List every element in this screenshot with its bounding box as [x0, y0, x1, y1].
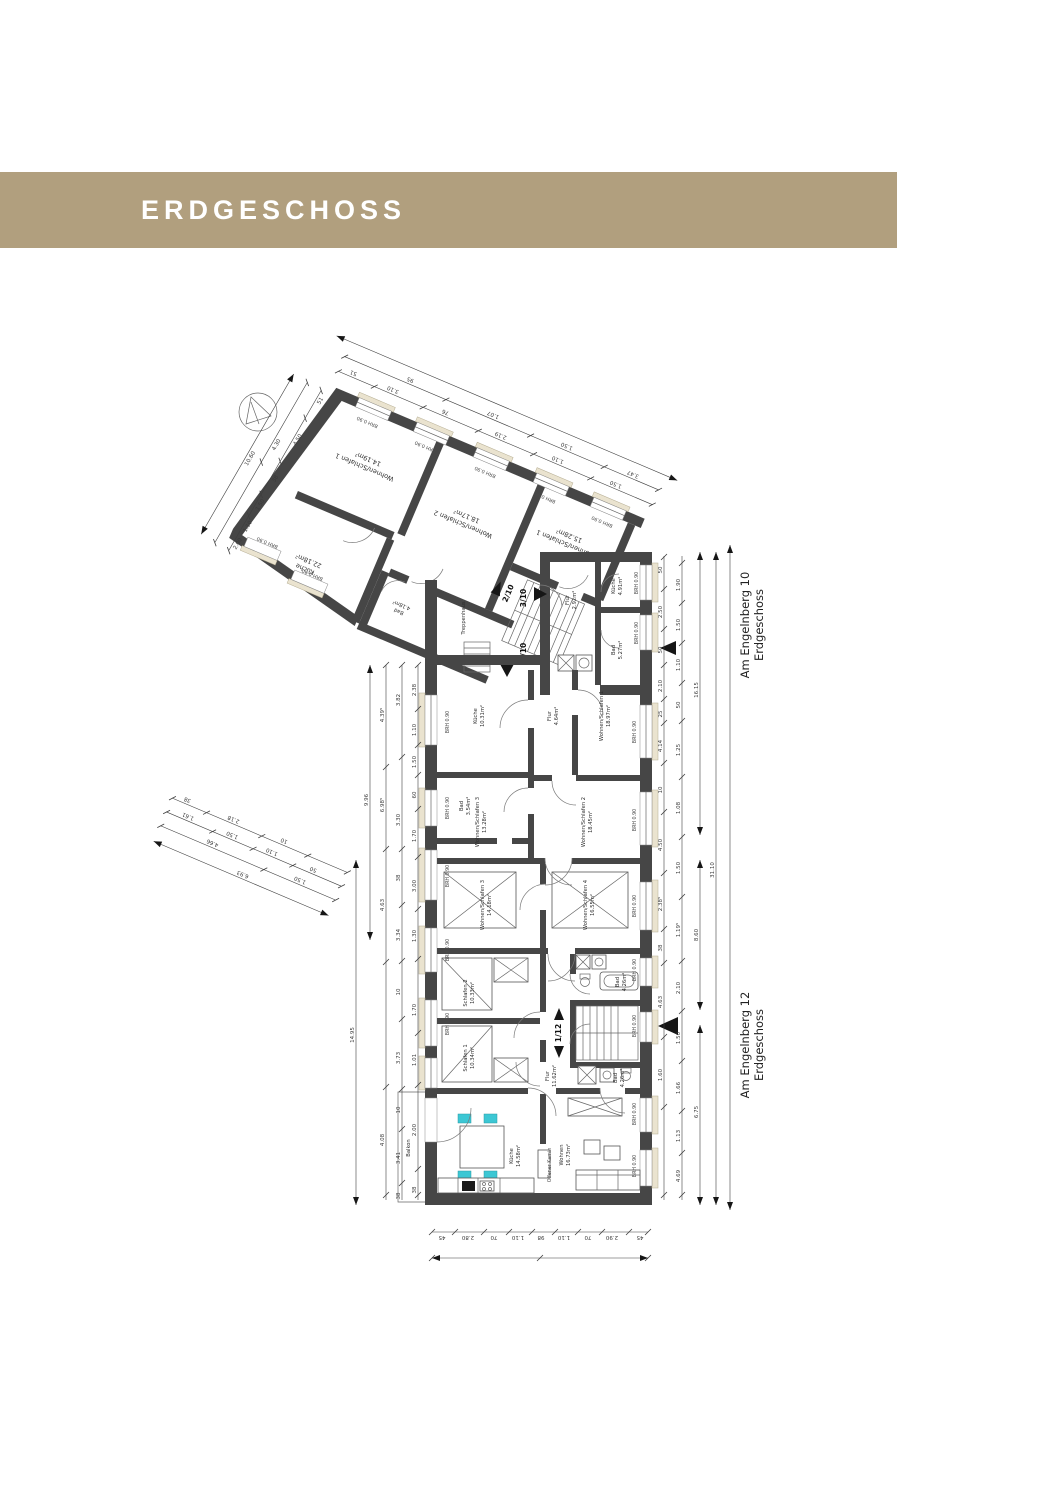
room-name: Flur [565, 594, 571, 605]
svg-text:31.10: 31.10 [710, 862, 716, 878]
svg-text:38: 38 [183, 795, 192, 803]
svg-text:45: 45 [636, 1234, 643, 1240]
brh-label: BRH 0.90 [634, 622, 640, 644]
room-name: Bad [611, 645, 617, 655]
svg-text:10: 10 [280, 836, 289, 844]
room-area: 11.62m² [552, 1065, 558, 1087]
brh-label: BRH 0.90 [445, 797, 451, 819]
room-name: Wohnen/Schlafen 4 [583, 879, 589, 930]
brh-label: BRH 0.90 [632, 809, 638, 831]
svg-text:1.60: 1.60 [658, 1068, 664, 1081]
room-name: Bad [615, 977, 621, 987]
room-area: 10.34m² [470, 1047, 476, 1069]
unit-marker-1-12: 1/12 [554, 1024, 563, 1042]
svg-text:70: 70 [490, 1234, 497, 1240]
bottom-dim-chains: 45 2.80 70 1.10 98 1.10 70 2.90 45 [429, 1229, 651, 1261]
balcony-label: Balkon [406, 1139, 412, 1156]
svg-text:3.73: 3.73 [396, 1051, 402, 1064]
svg-text:98: 98 [537, 1234, 544, 1240]
svg-text:1.70: 1.70 [412, 1003, 418, 1016]
room-name: Wohnen/Schlafen 1 [599, 691, 605, 741]
north-arrow-icon [239, 393, 277, 431]
brh-label: BRH 0.90 [632, 959, 638, 981]
room-name: Küche [473, 708, 479, 724]
left-upper-dim-chains: 51 4.50 38 1.50 1.10 2.00 4.30 10.60 [197, 371, 329, 557]
room-name: Wohnen/Schlafen 2 [581, 797, 587, 847]
svg-text:2.90: 2.90 [605, 1234, 618, 1240]
svg-text:4.66: 4.66 [206, 837, 220, 848]
room-area: 18.97m² [606, 705, 612, 727]
room-area: 14.18m² [487, 894, 493, 916]
svg-text:1.13: 1.13 [676, 1129, 682, 1142]
svg-text:3.41: 3.41 [396, 1152, 402, 1164]
entrance-arrows [658, 641, 678, 1035]
svg-text:14.95: 14.95 [350, 1027, 356, 1043]
svg-text:2.38: 2.38 [412, 683, 418, 696]
svg-text:1.50: 1.50 [676, 618, 682, 631]
room-area: 3.54m² [466, 797, 472, 816]
svg-text:45: 45 [438, 1234, 445, 1240]
brochure-page: ERDGESCHOSS [0, 0, 1060, 1500]
svg-text:4.63: 4.63 [380, 898, 386, 911]
svg-text:10: 10 [396, 988, 402, 995]
brh-label: BRH 0.90 [445, 711, 451, 733]
svg-text:1.50: 1.50 [412, 755, 418, 768]
lower-wing: 1/12 [398, 641, 678, 1205]
svg-text:38: 38 [396, 1192, 402, 1199]
svg-text:2.80: 2.80 [461, 1234, 474, 1240]
building-12-street: Am Engelnberg 12 [738, 992, 752, 1099]
svg-text:1.50: 1.50 [676, 861, 682, 874]
room-area: 4.26m² [622, 973, 628, 992]
svg-text:1.90: 1.90 [676, 578, 682, 591]
svg-text:1.19⁵: 1.19⁵ [675, 923, 682, 937]
svg-text:6.98⁵: 6.98⁵ [379, 798, 386, 812]
brh-label: BRH 0.90 [445, 1013, 451, 1035]
svg-text:3.10: 3.10 [386, 384, 400, 395]
room-name: Bad [613, 1073, 619, 1083]
building-labels: Am Engelnberg 10 Erdgeschoss Am Engelnbe… [738, 572, 766, 1099]
room-area: 4.91m² [618, 577, 624, 596]
svg-text:10: 10 [658, 786, 664, 793]
svg-text:50: 50 [658, 646, 664, 653]
room-area: 13.28m² [482, 811, 488, 833]
svg-text:2.00: 2.00 [412, 1123, 418, 1136]
room-name: Schlafen 1 [463, 1044, 469, 1071]
svg-text:1.10: 1.10 [412, 723, 418, 736]
svg-text:2.10: 2.10 [676, 981, 682, 994]
building-12-floor: Erdgeschoss [752, 1009, 766, 1081]
svg-text:4.69: 4.69 [676, 1169, 682, 1182]
svg-text:1.08: 1.08 [676, 801, 682, 814]
room-name: Schlafen 2 [463, 979, 469, 1006]
room-name: Flur [547, 710, 553, 721]
brh-label: BRH 0.90 [356, 415, 379, 429]
svg-text:2.10: 2.10 [658, 679, 664, 692]
svg-text:3.82: 3.82 [396, 694, 402, 706]
lower-stair: 1/12 [554, 1006, 638, 1060]
svg-text:1.10: 1.10 [551, 454, 565, 465]
brh-label: BRH 0.90 [632, 721, 638, 743]
room-area: 4.26m² [620, 1069, 626, 1088]
svg-text:25: 25 [658, 710, 664, 717]
svg-text:1.10: 1.10 [557, 1234, 570, 1240]
svg-text:1.01: 1.01 [412, 1054, 418, 1066]
svg-text:1.10: 1.10 [676, 658, 682, 671]
building-10-street: Am Engelnberg 10 [738, 572, 752, 679]
svg-text:38: 38 [396, 874, 402, 881]
svg-text:10.60: 10.60 [244, 450, 257, 467]
svg-text:1.07: 1.07 [486, 409, 500, 420]
svg-text:4.63: 4.63 [658, 995, 664, 1008]
room-area: 10.33m² [470, 982, 476, 1004]
brh-label: BRH 0.90 [445, 865, 451, 887]
left-dim-chains: 2.38 1.10 1.50 60 1.70 3.00 1.30 1.70 1.… [350, 662, 421, 1205]
svg-text:1.10: 1.10 [511, 1234, 524, 1240]
svg-text:2.19: 2.19 [494, 430, 508, 441]
room-name: Flur [545, 1070, 551, 1081]
svg-text:76: 76 [441, 407, 450, 415]
stairwell-label: Treppenhaus [461, 601, 467, 635]
room-name: Wohnen [559, 1144, 565, 1165]
svg-text:50: 50 [658, 566, 664, 573]
room-area: 4.64m² [554, 707, 560, 726]
room-area: 16.73m² [566, 1144, 572, 1166]
svg-text:4.14: 4.14 [658, 739, 664, 752]
svg-text:95: 95 [406, 375, 415, 383]
brh-label: BRH 0.90 [632, 895, 638, 917]
svg-text:6.93: 6.93 [236, 868, 250, 879]
svg-text:16.15: 16.15 [694, 682, 700, 698]
brh-label: BRH 0.90 [632, 1155, 638, 1177]
svg-text:8.60: 8.60 [694, 928, 700, 941]
room-name: Bad [459, 801, 465, 811]
svg-text:4.30: 4.30 [271, 438, 283, 452]
brh-label: BRH 0.90 [591, 514, 614, 528]
brh-label: BRH 0.90 [414, 439, 437, 453]
svg-text:50: 50 [676, 701, 682, 708]
room-name: Küche [509, 1148, 515, 1164]
connector-block: Flur 2.92m² Küche 4.91m² Bad 5.27m² BRH … [519, 552, 658, 695]
svg-text:1.30: 1.30 [412, 929, 418, 942]
svg-text:4.08: 4.08 [380, 1133, 386, 1146]
bath-upper-fixtures [576, 955, 638, 990]
svg-text:1.70: 1.70 [412, 829, 418, 842]
svg-text:9.96: 9.96 [364, 793, 370, 806]
svg-text:1.25: 1.25 [676, 743, 682, 756]
room-area: 2.92m² [572, 591, 578, 610]
room-name: Wohnen/Schlafen 3 [475, 797, 481, 847]
svg-text:50: 50 [309, 865, 318, 873]
svg-text:51: 51 [316, 397, 325, 406]
svg-text:60: 60 [412, 791, 418, 798]
svg-text:1.50: 1.50 [225, 829, 239, 840]
svg-text:3.00: 3.00 [412, 879, 418, 892]
svg-text:1.50: 1.50 [676, 1031, 682, 1044]
svg-text:1.10: 1.10 [265, 846, 279, 857]
svg-text:70: 70 [584, 1234, 591, 1240]
svg-text:38: 38 [412, 1186, 418, 1193]
building-10-floor: Erdgeschoss [752, 589, 766, 661]
svg-text:3.30: 3.30 [396, 813, 402, 826]
svg-text:3.47: 3.47 [626, 468, 640, 479]
brh-label: BRH 0.90 [634, 572, 640, 594]
svg-text:38: 38 [658, 944, 664, 951]
svg-text:2.50: 2.50 [658, 605, 664, 618]
fireplace-label: Offener Kamin [547, 1148, 553, 1183]
room-area: 14.58m² [516, 1145, 522, 1167]
svg-text:51: 51 [349, 368, 358, 376]
room-area: 18.45m² [588, 811, 594, 833]
room-area: 10.31m² [480, 705, 486, 727]
room-name: Wohnen/Schlafen 3 [480, 880, 486, 930]
room-name: Küche [611, 578, 617, 594]
room-area: 5.27m² [618, 641, 624, 660]
svg-text:3/10: 3/10 [519, 589, 528, 607]
svg-text:4.39⁵: 4.39⁵ [379, 708, 386, 722]
svg-text:3.34: 3.34 [396, 928, 402, 941]
svg-text:2.18: 2.18 [227, 813, 241, 824]
svg-text:10: 10 [396, 1106, 402, 1113]
floor-plan-drawing: BRH 0.90 BRH 0.90 BRH 0.90 BRH 0.90 BRH … [0, 0, 1060, 1500]
brh-label: BRH 0.90 [632, 1015, 638, 1037]
svg-text:2.38⁵: 2.38⁵ [657, 897, 664, 911]
left-floating-dim-block: 38 2.18 10 1.61 1.50 1.10 50 4.66 1.50 6… [151, 790, 353, 920]
svg-text:6.75: 6.75 [694, 1105, 700, 1118]
room-area: 16.55m² [590, 894, 596, 916]
svg-text:1.50: 1.50 [560, 440, 574, 451]
svg-text:1.50: 1.50 [293, 874, 307, 885]
brh-label: BRH 0.90 [474, 465, 497, 479]
svg-text:1.50: 1.50 [609, 478, 623, 489]
brh-label: BRH 0.90 [632, 1103, 638, 1125]
svg-text:1.66: 1.66 [676, 1081, 682, 1094]
svg-text:4.50: 4.50 [658, 838, 664, 851]
brh-label: BRH 0.90 [445, 939, 451, 961]
